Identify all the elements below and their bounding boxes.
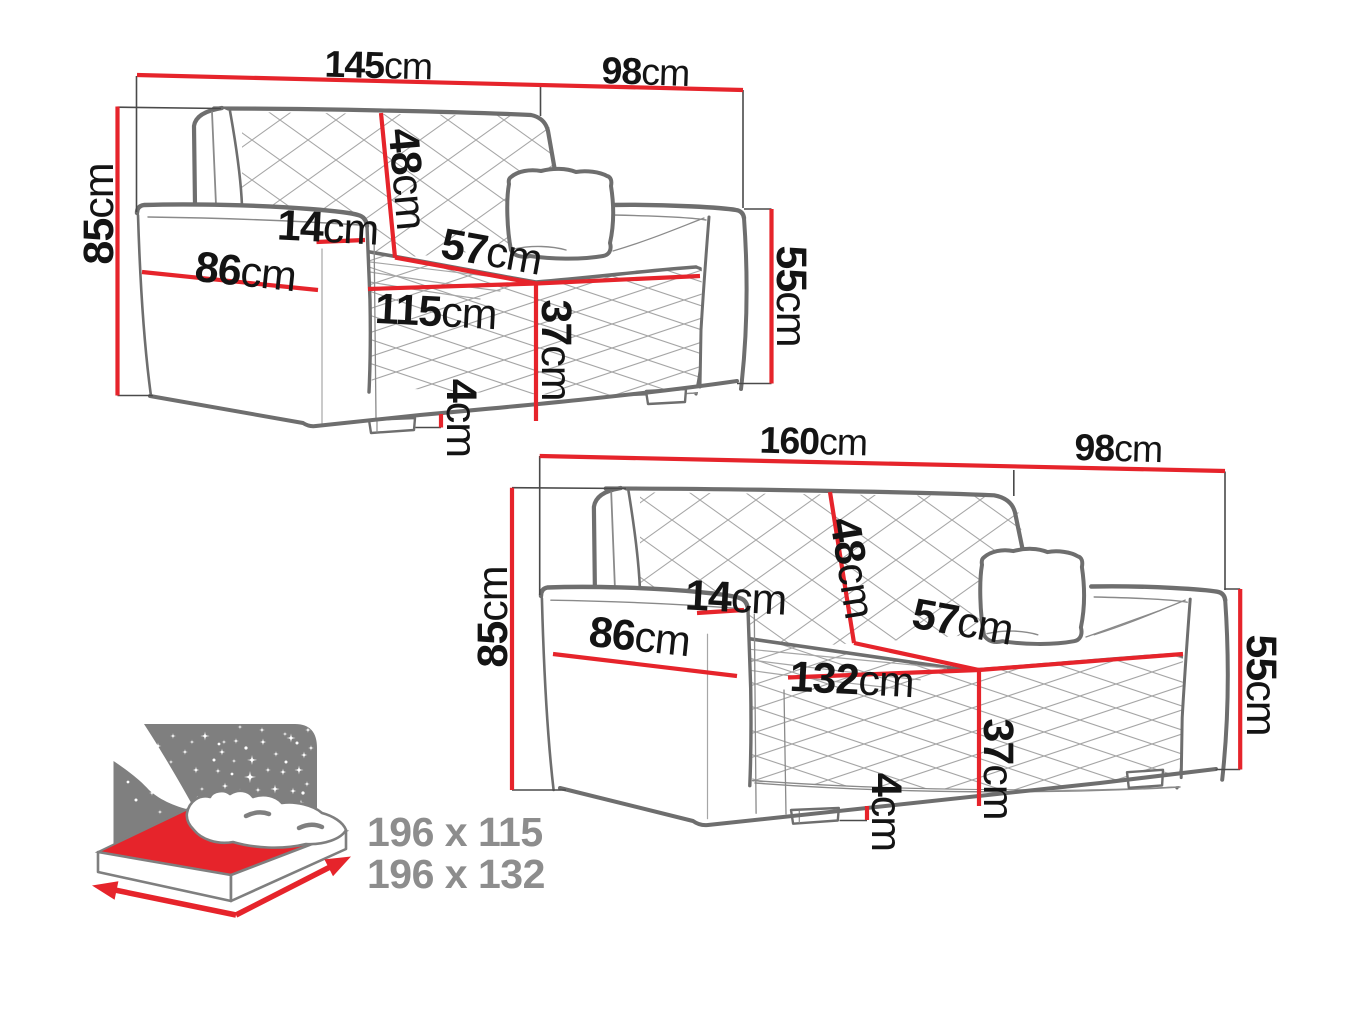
svg-text:98cm: 98cm (1074, 426, 1163, 470)
svg-text:85cm: 85cm (75, 163, 123, 264)
svg-text:160cm: 160cm (759, 419, 868, 464)
svg-text:115cm: 115cm (374, 285, 498, 339)
svg-text:145cm: 145cm (324, 43, 433, 88)
svg-text:132cm: 132cm (789, 653, 915, 707)
svg-text:4cm: 4cm (862, 773, 910, 851)
svg-text:196 x 132: 196 x 132 (367, 851, 545, 897)
svg-text:14cm: 14cm (684, 571, 788, 624)
svg-text:14cm: 14cm (276, 201, 380, 254)
svg-text:4cm: 4cm (437, 379, 485, 457)
svg-text:55cm: 55cm (1237, 634, 1285, 735)
svg-text:37cm: 37cm (974, 718, 1022, 819)
svg-text:55cm: 55cm (767, 245, 815, 346)
svg-text:196 x 115: 196 x 115 (367, 809, 543, 855)
svg-text:48cm: 48cm (379, 126, 436, 231)
svg-text:98cm: 98cm (601, 49, 690, 94)
svg-text:37cm: 37cm (532, 299, 580, 400)
svg-text:85cm: 85cm (469, 566, 517, 667)
